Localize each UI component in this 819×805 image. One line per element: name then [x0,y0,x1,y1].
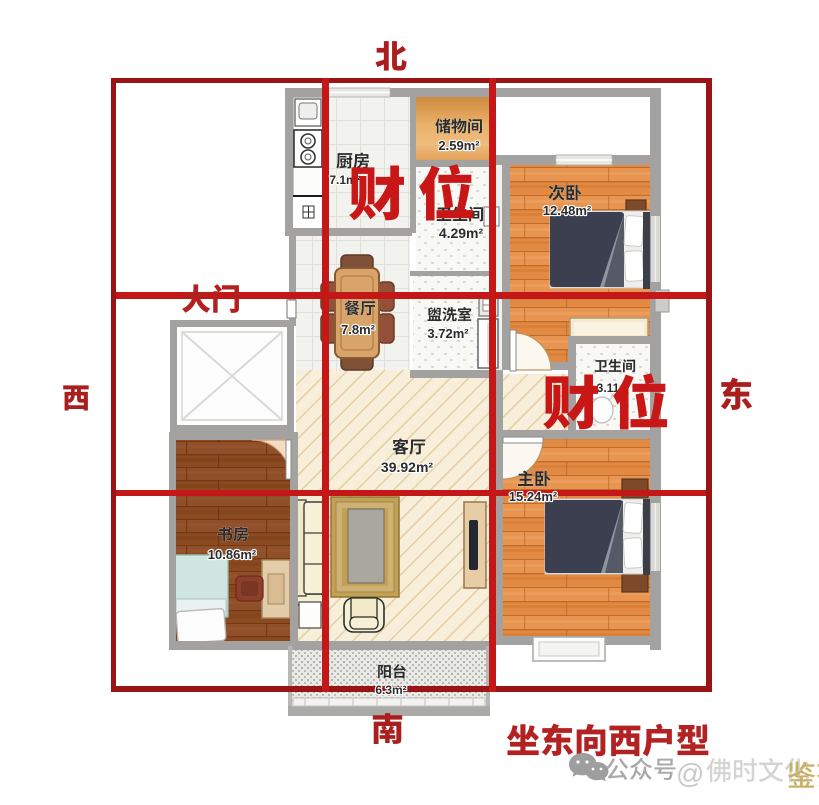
svg-text:2.59m²: 2.59m² [438,138,480,153]
svg-text:4.29m²: 4.29m² [439,225,484,241]
svg-text:3.72m²: 3.72m² [427,326,469,341]
svg-text:7.8m²: 7.8m² [341,322,376,337]
svg-text:15.24m²: 15.24m² [509,489,558,504]
svg-text:10.86m²: 10.86m² [208,547,257,562]
svg-text:@: @ [676,758,704,789]
svg-text:39.92m²: 39.92m² [381,459,433,475]
svg-text:12.48m²: 12.48m² [543,203,592,218]
svg-text:6.3m²: 6.3m² [375,683,406,697]
